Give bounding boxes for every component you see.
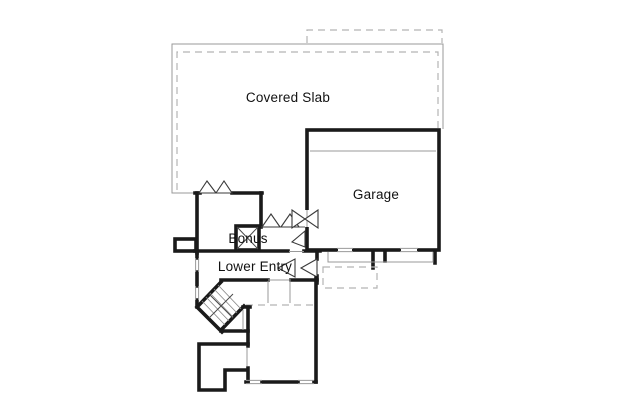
window-icon: [199, 181, 232, 193]
door-swing-icon: [292, 231, 305, 247]
stair-x-mark: [209, 294, 233, 318]
corridor-structure: [261, 210, 318, 252]
left-exterior-wall: [196, 253, 199, 307]
room-label-covered-slab: Covered Slab: [246, 90, 330, 105]
room-label-lower-entry: Lower Entry: [218, 259, 292, 274]
door-swing-icon: [301, 259, 317, 277]
stoop-dashed-pad: [323, 267, 377, 288]
room-label-bonus: Bonus: [228, 231, 267, 246]
staircase: [197, 282, 250, 332]
rear-stoop: [323, 252, 433, 288]
door-swing-icon: [292, 210, 305, 228]
floor-plan-canvas: Covered Slab Garage Bonus Lower Entry: [0, 0, 620, 415]
left-chase-box: [175, 239, 196, 251]
floor-plan-drawing: Covered Slab Garage Bonus Lower Entry: [0, 0, 620, 415]
room-label-garage: Garage: [353, 187, 399, 202]
bump-out-walls: [199, 344, 248, 390]
stoop-outline: [328, 252, 433, 262]
roof-overhang-dashed-box: [307, 30, 442, 43]
garage-rear-jambs: [373, 252, 435, 268]
lower-entry-opening-jambs: [268, 280, 291, 303]
bottom-room-structure: [199, 278, 316, 390]
